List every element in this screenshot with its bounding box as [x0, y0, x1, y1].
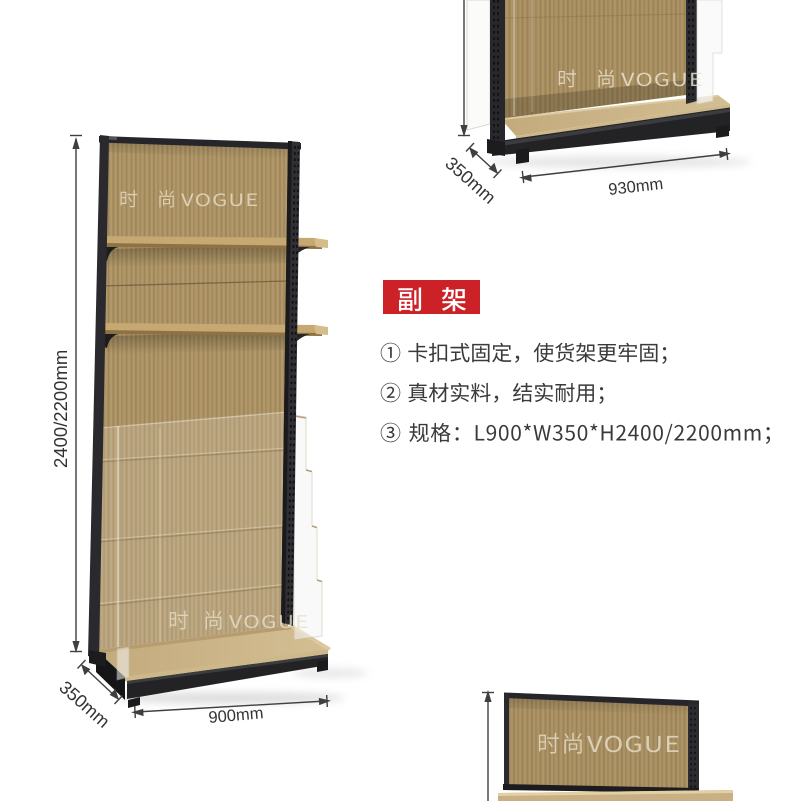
- svg-text:2400/2200mm: 2400/2200mm: [50, 350, 71, 468]
